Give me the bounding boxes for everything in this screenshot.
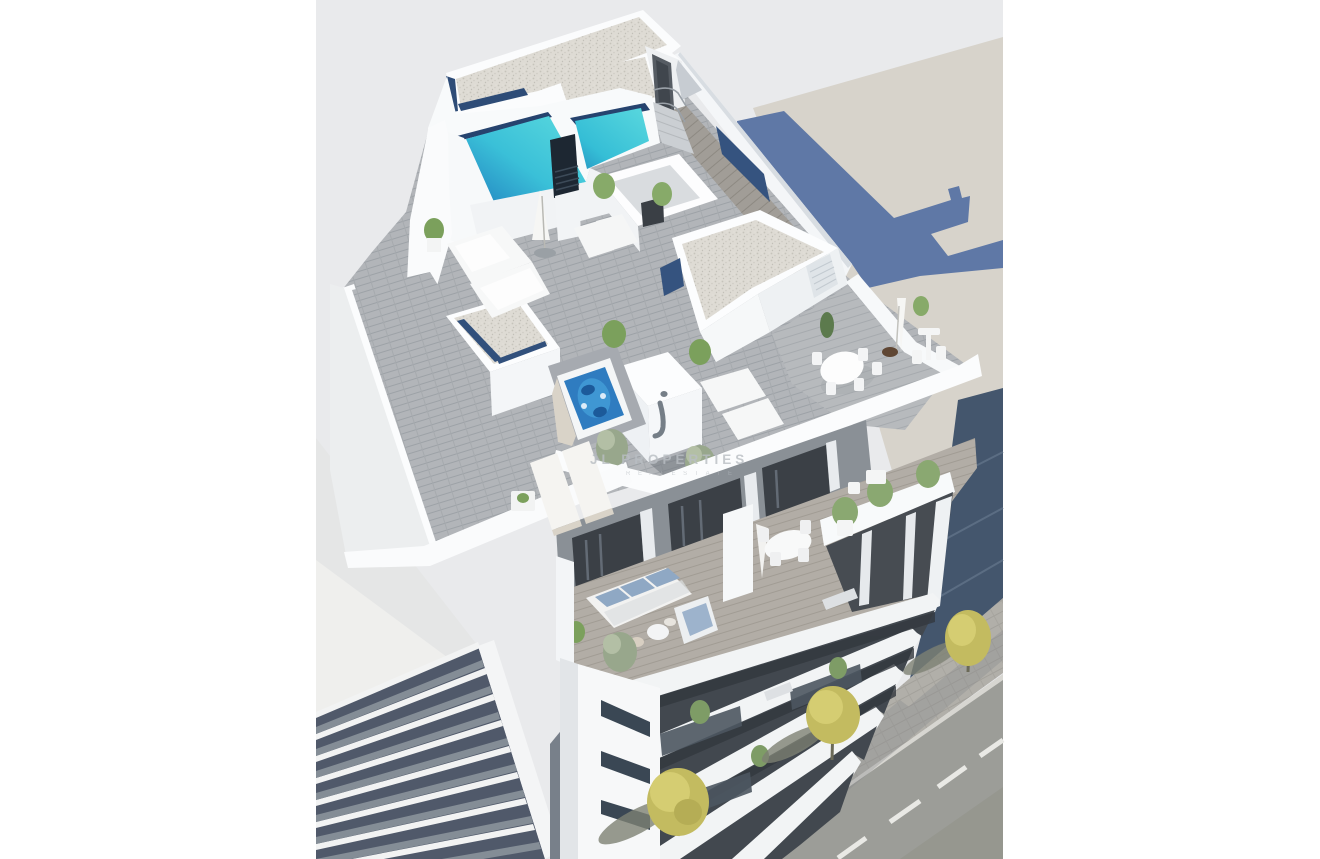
svg-text:R E A L E S T A T E: R E A L E S T A T E [626,471,735,477]
svg-text:JL PROPERTIES: JL PROPERTIES [590,452,748,467]
